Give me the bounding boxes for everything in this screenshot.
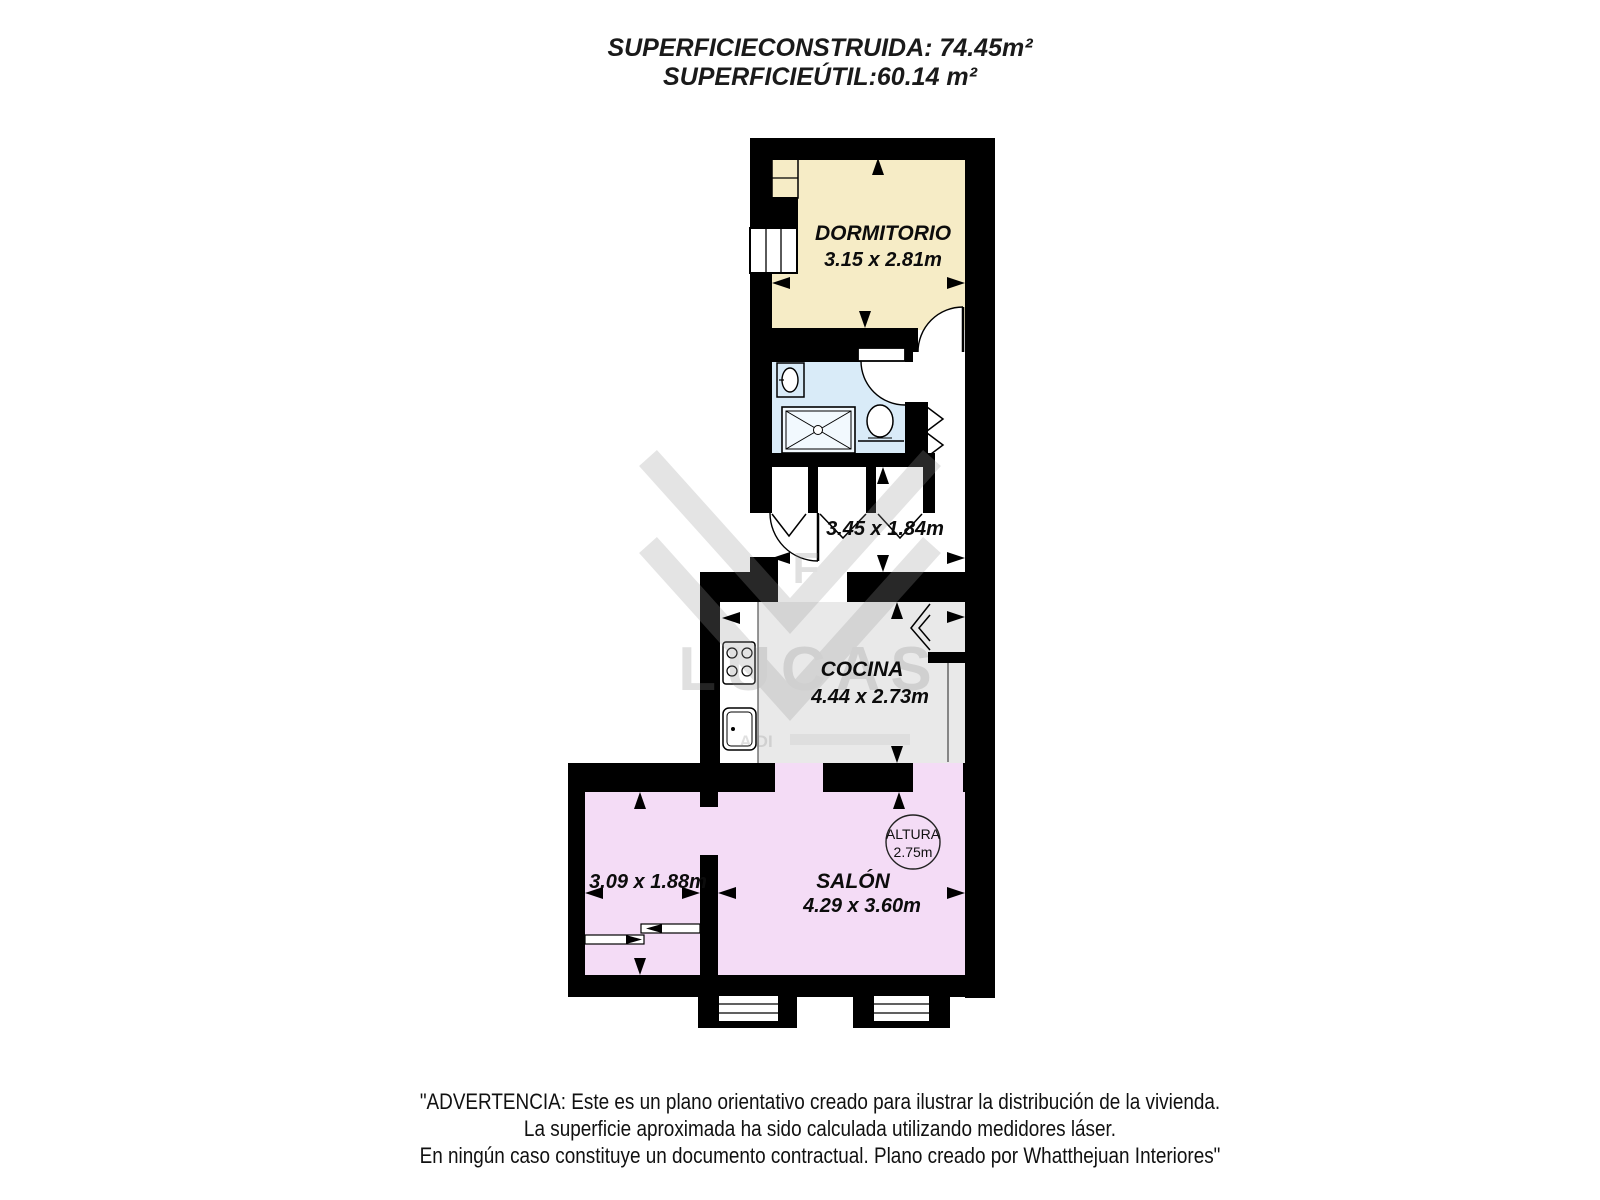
wall-segment	[808, 467, 818, 513]
dormitorio-dims: 3.15 x 2.81m	[824, 249, 942, 271]
dormitorio-label: DORMITORIO	[815, 222, 951, 245]
cocina-dims: 4.44 x 2.73m	[810, 686, 929, 708]
kitchen-salon-passage	[775, 763, 823, 792]
pasillo-dims: 3.45 x 1.84m	[826, 518, 944, 540]
wall-segment	[568, 763, 775, 792]
wall-segment	[750, 453, 932, 467]
watermark-letter: F	[793, 544, 820, 593]
dim-arrow-right-icon	[947, 552, 965, 564]
wall-segment	[963, 763, 995, 792]
dim-arrow-up-icon	[877, 467, 889, 484]
disclaimer-line-3: En ningún caso constituye un documento c…	[149, 1142, 1491, 1169]
wall-segment	[750, 138, 995, 160]
cocina-label: COCINA	[821, 658, 904, 681]
wall-segment	[568, 763, 585, 997]
room2-salon-opening	[700, 807, 718, 855]
dormitorio-window-icon	[750, 228, 797, 273]
disclaimer-footer: "ADVERTENCIA: Este es un plano orientati…	[40, 1088, 1600, 1169]
disclaimer-line-1: "ADVERTENCIA: Este es un plano orientati…	[149, 1088, 1491, 1115]
wall-segment	[750, 138, 772, 230]
gallery-salon-passage	[913, 763, 963, 792]
altura-label: ALTURA	[886, 826, 941, 842]
bay-window-1-icon	[718, 995, 779, 1022]
wall-segment	[772, 197, 798, 230]
wall-segment	[965, 138, 995, 998]
salon-label: SALÓN	[816, 869, 890, 893]
wall-segment	[905, 402, 928, 453]
corridor-closet-bifold-icon	[927, 407, 943, 457]
wall-segment	[950, 975, 995, 997]
bay-window-2-icon	[873, 995, 930, 1022]
watermark-blur-bar	[790, 734, 910, 745]
habitacion2-dims: 3.09 x 1.88m	[589, 871, 707, 893]
wall-segment	[797, 975, 853, 997]
shower-tray-icon	[782, 407, 855, 453]
altura-value: 2.75m	[894, 844, 933, 860]
altura-circle	[886, 815, 940, 869]
wall-segment	[700, 792, 718, 807]
wall-segment	[568, 975, 700, 997]
salon-dims: 4.29 x 3.60m	[802, 895, 921, 917]
wall-segment	[823, 763, 913, 792]
disclaimer-line-2: La superficie aproximada ha sido calcula…	[149, 1115, 1491, 1142]
altura-badge: ALTURA 2.75m	[886, 815, 941, 869]
watermark-subtext: A DI	[739, 732, 772, 751]
floorplan-page: { "header": { "line1": "SUPERFICIECONSTR…	[0, 0, 1600, 1200]
floorplan-svg: F LUCAS A DI DORMITORIO 3.15 x 2.81m 3.4…	[0, 0, 1600, 1200]
wall-segment	[750, 467, 772, 513]
dim-arrow-down-icon	[877, 555, 889, 572]
